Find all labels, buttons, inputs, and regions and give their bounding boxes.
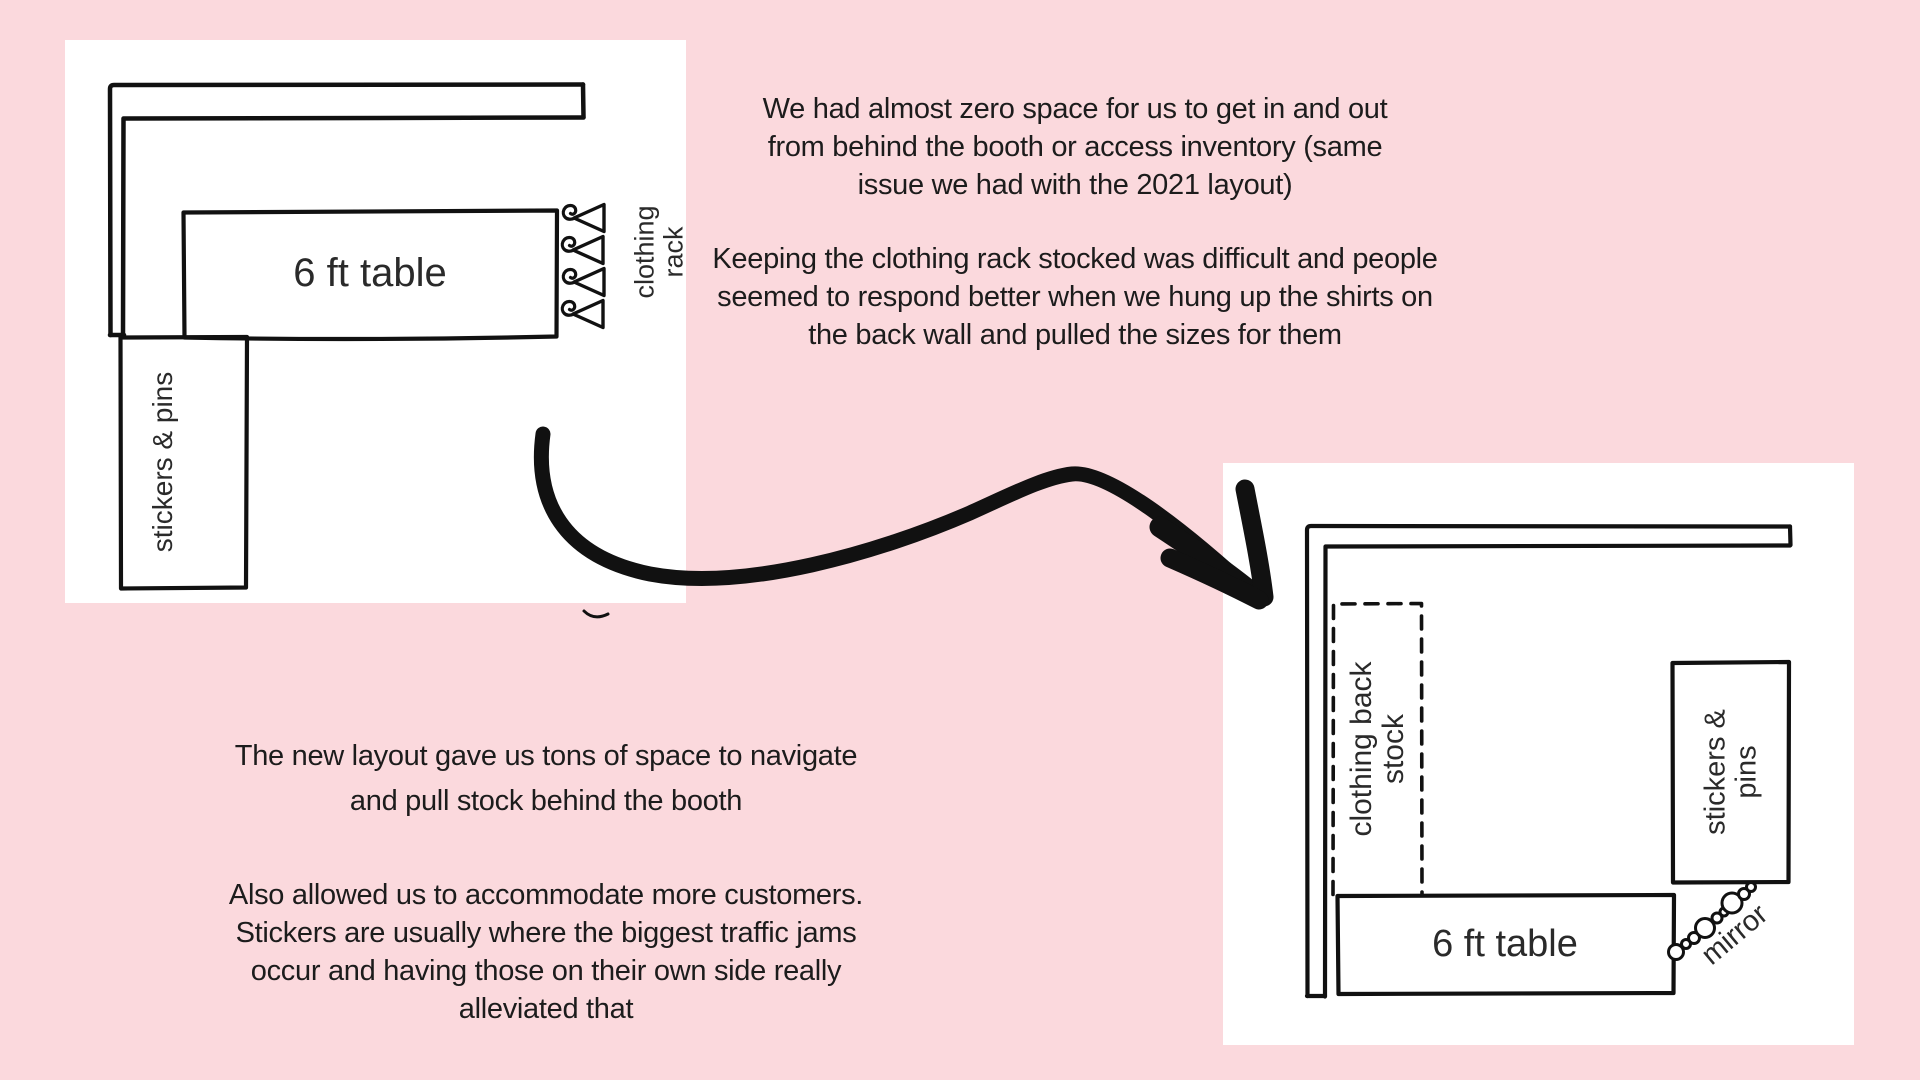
clothing-rack-label: clothing rack [630,205,687,298]
note-old-layout-space-issue: We had almost zero space for us to get i… [763,90,1388,204]
note-new-layout-customer-benefit: Also allowed us to accommodate more cust… [229,876,863,1028]
stickers-pins-label: stickers & pins [1700,709,1761,835]
infographic-canvas: 6 ft table stickers & pins clothing rack [0,0,1920,1080]
old-layout-floorplan-panel: 6 ft table stickers & pins clothing rack [65,40,686,603]
stray-squiggle-mark [584,611,608,617]
hanger-icons [562,205,604,328]
clothing-back-stock-label: clothing back stock [1346,661,1410,836]
new-layout-floorplan-panel: 6 ft table clothing back stock stickers … [1223,463,1854,1045]
table-label: 6 ft table [1432,924,1578,964]
note-new-layout-space-benefit: The new layout gave us tons of space to … [235,734,857,824]
table-label: 6 ft table [293,252,446,294]
stickers-pins-label: stickers & pins [148,372,178,553]
note-old-layout-rack-issue: Keeping the clothing rack stocked was di… [712,240,1437,354]
stickers-box-shape [121,337,248,589]
